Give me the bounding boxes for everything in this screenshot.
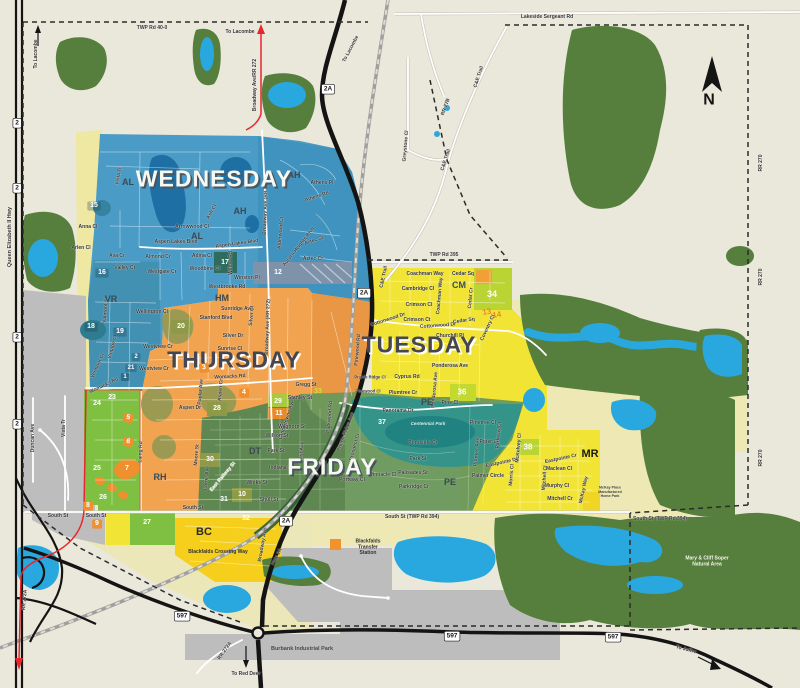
road-label: Crimson Cl <box>406 302 433 307</box>
road-label: Westview Cr <box>139 366 169 371</box>
highway-shield: 597 <box>444 631 460 641</box>
road-label: Shull St <box>260 497 279 502</box>
road-label: Stanford Blvd <box>200 315 233 320</box>
area-label: BC <box>196 527 212 539</box>
road-label: Lakeside Sergeant Rd <box>521 14 573 19</box>
zone-badge: 32 <box>242 515 250 523</box>
zone-badge: 26 <box>99 494 107 502</box>
zone-badge: 4 <box>239 389 248 398</box>
highway-shield: 2A <box>357 288 371 298</box>
zone-badge: 27 <box>143 519 151 527</box>
road-label: South St <box>48 513 69 518</box>
road-label: South St (TWP Rd 394) <box>385 514 439 519</box>
road-label: Valley Cr <box>114 265 135 270</box>
poi-label: Blackfalds Transfer Station <box>355 538 380 555</box>
road-label: Aztec Cr <box>303 256 323 261</box>
road-label: Westgate Cr <box>147 269 176 274</box>
road-label: Pinewood Cl <box>355 390 380 395</box>
highway-shield: 2 <box>13 183 22 193</box>
highway-shield: 2 <box>13 332 22 342</box>
road-label: Queen Elizabeth II Hwy <box>7 207 13 267</box>
zone-badge: 19 <box>113 328 126 337</box>
road-label: Ava Cr <box>109 253 125 258</box>
zone-badge: 28 <box>213 405 221 413</box>
zone-badge: 24 <box>93 400 101 408</box>
zone-badge: 37 <box>378 419 386 427</box>
highway-shield: 597 <box>605 632 621 642</box>
road-label: Ponderosa Ave <box>432 363 468 368</box>
road-label: Coachman Way <box>406 271 443 276</box>
road-label: South St <box>183 505 204 510</box>
poi-label: Blackfalds Crossing Way <box>188 549 248 555</box>
road-label: Crimson Ct <box>404 317 431 322</box>
road-label: Woodbine Cl <box>190 266 220 271</box>
zone-badge: 30 <box>206 456 214 464</box>
zone-badge: 11 <box>275 410 282 418</box>
zone-badge: 1 <box>121 373 129 381</box>
road-label: Broadway Ave/RR 272 <box>252 59 257 111</box>
road-label: To Red Deer <box>231 671 260 676</box>
road-label: Maclean Cl <box>546 466 572 471</box>
area-label: DT <box>249 447 261 457</box>
zone-badge: 38 <box>524 444 533 453</box>
road-label: Panorama Dr <box>382 408 413 413</box>
highway-shield: 2 <box>13 118 22 128</box>
poi-label: Centennial Park <box>411 421 446 426</box>
zone-badge: 13 <box>482 308 492 318</box>
highway-shield: 2A <box>321 84 335 94</box>
zone-badge: 21 <box>125 364 136 372</box>
road-label: Prairie Ridge Cl <box>354 376 385 381</box>
road-label: RR 270 <box>758 155 763 172</box>
road-label: Athens Pl <box>310 180 333 185</box>
zone-badge: 7 <box>125 465 129 473</box>
road-label: South St (TWP Rd 394) <box>633 516 687 521</box>
road-label: Arlen Cl <box>71 245 90 250</box>
area-label: MR <box>581 449 598 461</box>
zone-badge: 15 <box>87 202 100 211</box>
north-label: N <box>703 91 715 108</box>
road-label: Pondside Cr <box>408 440 437 445</box>
highway-shield: 2A <box>279 516 293 526</box>
day-zone-label: WEDNESDAY <box>136 167 292 192</box>
zone-badge: 17 <box>221 259 229 267</box>
road-label: Cedar Sq <box>452 271 474 276</box>
road-label: Plumtree Cr <box>389 390 417 395</box>
road-label: To Lacombe <box>225 29 254 34</box>
road-label: Wellington Cl <box>136 309 168 314</box>
zone-badge: 16 <box>95 269 108 278</box>
zone-badge: 25 <box>93 465 101 473</box>
zone-badge: 23 <box>108 394 116 402</box>
zone-badge: 9 <box>92 520 101 529</box>
area-label: AH <box>234 207 247 217</box>
road-label: Winston Pl <box>234 275 260 280</box>
area-label: PE <box>444 478 456 488</box>
zone-badge: 31 <box>220 496 228 504</box>
area-label: AL <box>122 178 134 188</box>
road-label: Vista Tr <box>61 419 66 437</box>
zone-badge: 12 <box>274 269 282 277</box>
highway-shield: 2 <box>13 419 22 429</box>
road-label: Adina Cl <box>192 253 212 258</box>
area-label: CM <box>452 281 466 291</box>
road-label: Winks St <box>246 480 267 485</box>
road-label: Arrowwood Cl <box>175 224 209 229</box>
zone-badge: 36 <box>458 389 467 398</box>
zone-badge: 33 <box>314 388 322 396</box>
road-label: Aspen Dr <box>179 405 201 410</box>
area-label: PE <box>421 398 433 408</box>
road-label: South St <box>86 513 107 518</box>
road-label: RR 270 <box>758 450 763 467</box>
area-label: VR <box>105 295 118 305</box>
zone-badge: 18 <box>84 323 97 332</box>
road-label: Duncan Ave <box>30 424 35 453</box>
road-label: Anna Cl <box>79 224 98 229</box>
road-label: Pine Cl <box>442 400 459 405</box>
zone-badge: 29 <box>274 398 282 406</box>
zone-badge: 20 <box>177 323 185 331</box>
road-label: Laing Rd <box>138 441 144 463</box>
day-zone-label: THURSDAY <box>167 348 301 373</box>
zone-badge: 3 <box>199 363 210 373</box>
zone-badge: 10 <box>238 491 246 499</box>
road-label: Mitchell Cr <box>547 496 573 501</box>
road-label: Cyprus Rd <box>394 374 419 379</box>
road-label: Parkridge Cr <box>399 484 429 489</box>
area-label: RH <box>154 473 167 483</box>
zone-badge: 2 <box>132 353 140 361</box>
road-label: Almond Cr <box>145 254 171 259</box>
road-label: Park St <box>409 456 426 461</box>
zone-badge: 34 <box>487 290 497 300</box>
road-label: TWP Rd 395 <box>430 252 459 257</box>
area-label: HM <box>215 294 229 304</box>
day-zone-label: TUESDAY <box>362 333 477 358</box>
area-label: AL <box>191 232 203 242</box>
road-label: Palisades St <box>398 470 427 475</box>
road-label: Wilson St <box>266 433 289 438</box>
road-label: Murphy Cl <box>545 483 569 488</box>
road-label: To Lacombe <box>33 39 38 68</box>
road-label: Sunridge Ave <box>221 306 253 311</box>
zone-badge: 8 <box>83 502 92 511</box>
road-label: Palmer Circle <box>472 473 504 478</box>
roundabout <box>253 628 264 639</box>
road-label: Pinetree Cl <box>470 420 496 425</box>
road-label: RR 270 <box>758 269 763 286</box>
blackfalds-collection-schedule-map: TWP Rd 40-0Lakeside Sergeant RdTo Lacomb… <box>0 0 800 688</box>
road-label: Waghorn St <box>278 424 306 429</box>
poi-label: Burbank Industrial Park <box>271 646 333 652</box>
road-label: Silver Dr <box>223 333 244 338</box>
road-label: Willow Rd <box>228 251 233 275</box>
day-zone-label: FRIDAY <box>287 455 377 480</box>
poi-label: Mary & Cliff Soper Natural Area <box>685 555 728 567</box>
zone-badge: 14 <box>492 311 502 321</box>
transfer-station-icon <box>330 539 341 550</box>
road-label: Park St <box>267 448 284 453</box>
road-label: Cambridge Cl <box>402 286 435 291</box>
road-label: Westbrooke Rd <box>209 284 246 289</box>
poi-label: McKay Place Manufactured Home Park <box>598 486 622 498</box>
highway-shield: 597 <box>174 611 190 621</box>
road-label: TWP Rd 40-0 <box>137 25 167 30</box>
